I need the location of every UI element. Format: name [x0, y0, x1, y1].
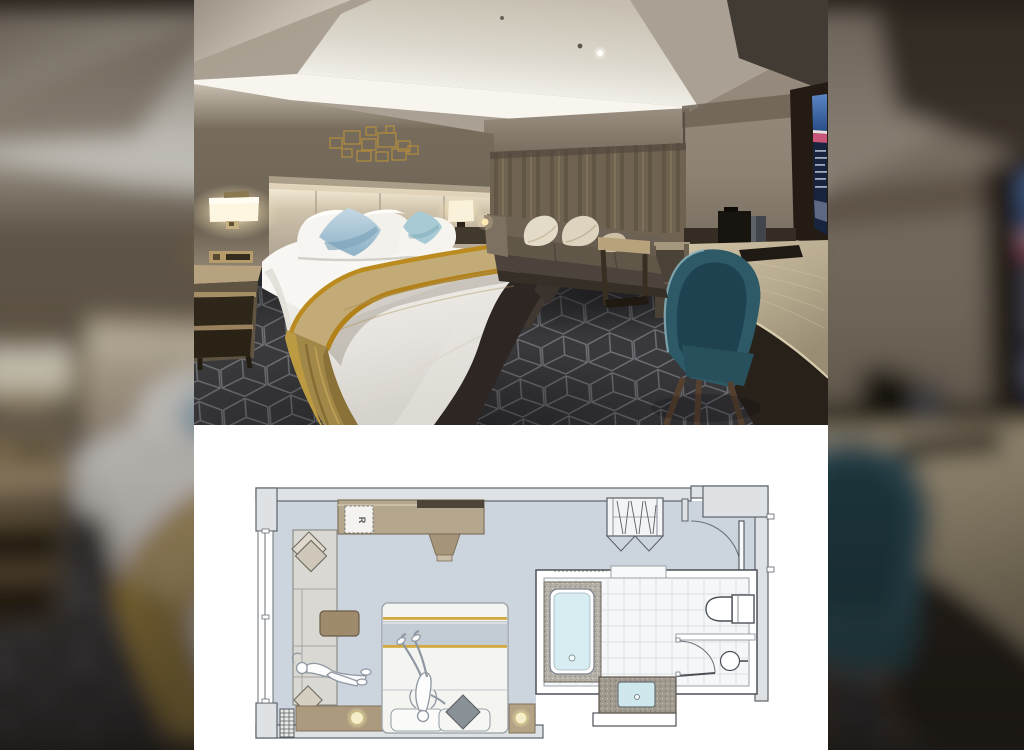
svg-text:R: R — [357, 517, 367, 524]
